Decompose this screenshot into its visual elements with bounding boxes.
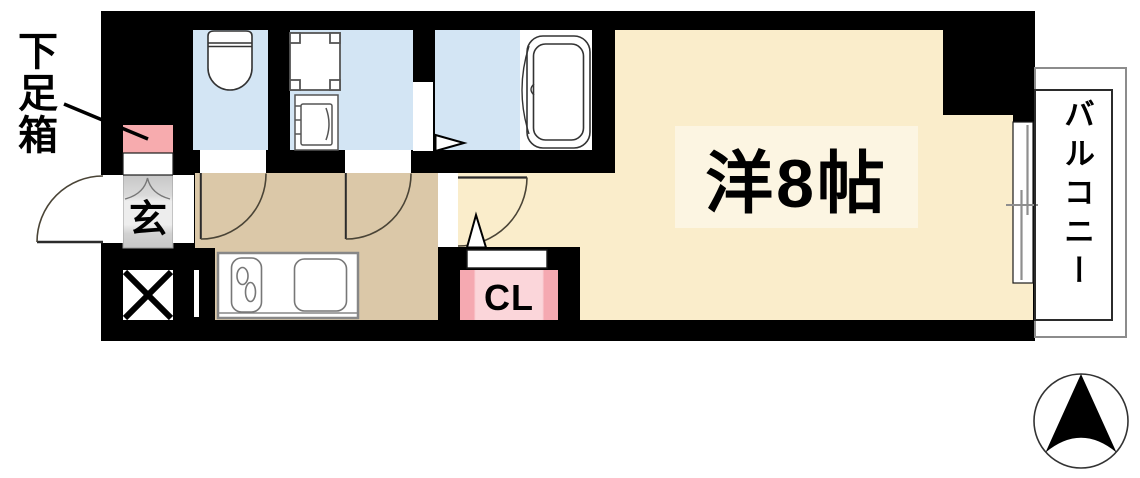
washbasin-icon [295,95,338,150]
shoe-box-label: 下足箱 [14,30,54,156]
room-bathroom-floor [435,30,520,150]
closet-door [467,250,547,268]
main-room-label: 洋8帖 [675,126,918,228]
balcony-label: バルコニー [1054,98,1099,293]
kitchen-counter-icon [218,253,358,318]
washing-machine-pan-icon [290,33,340,90]
floorplan-canvas: 下足箱 玄 CL 洋8帖 バルコニー [0,0,1140,478]
bathroom-door-opening [413,82,433,151]
toilet-icon [208,31,252,90]
entrance-corridor-opening [173,175,194,243]
stove-burners-icon [232,258,262,312]
entry-door-swing-arc-icon [37,176,103,242]
shoe-box-door-opening [123,153,173,175]
entry-door-opening [101,175,123,243]
washroom-door-opening [345,150,411,173]
bathtub-icon [522,36,590,148]
toilet-door-opening [200,150,266,173]
kitchen-sink-icon [295,259,347,311]
closet-label: CL [460,277,558,319]
compass-north-icon [1034,374,1128,468]
wall-gap-sliver [194,270,199,317]
main-room-door-opening [438,173,458,247]
entrance-label: 玄 [123,184,173,246]
